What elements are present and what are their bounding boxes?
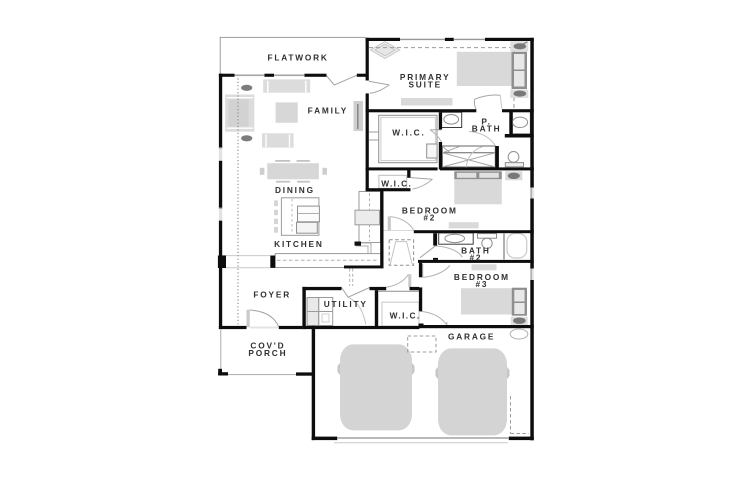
svg-text:#3: #3 (475, 279, 488, 289)
svg-text:SUITE: SUITE (408, 80, 441, 90)
svg-text:UTILITY: UTILITY (324, 299, 368, 309)
svg-text:W.I.C.: W.I.C. (390, 311, 421, 321)
svg-text:DINING: DINING (275, 185, 315, 195)
svg-text:FLATWORK: FLATWORK (267, 53, 328, 63)
svg-text:PORCH: PORCH (248, 348, 287, 358)
svg-text:BATH: BATH (472, 124, 502, 134)
svg-text:W.I.C.: W.I.C. (381, 178, 412, 188)
svg-text:GARAGE: GARAGE (448, 331, 495, 341)
svg-text:#2: #2 (423, 213, 436, 223)
svg-text:FAMILY: FAMILY (308, 106, 348, 116)
svg-text:#2: #2 (469, 252, 482, 262)
svg-text:W.I.C.: W.I.C. (392, 128, 425, 138)
svg-text:FOYER: FOYER (253, 290, 291, 300)
svg-text:KITCHEN: KITCHEN (274, 239, 323, 249)
